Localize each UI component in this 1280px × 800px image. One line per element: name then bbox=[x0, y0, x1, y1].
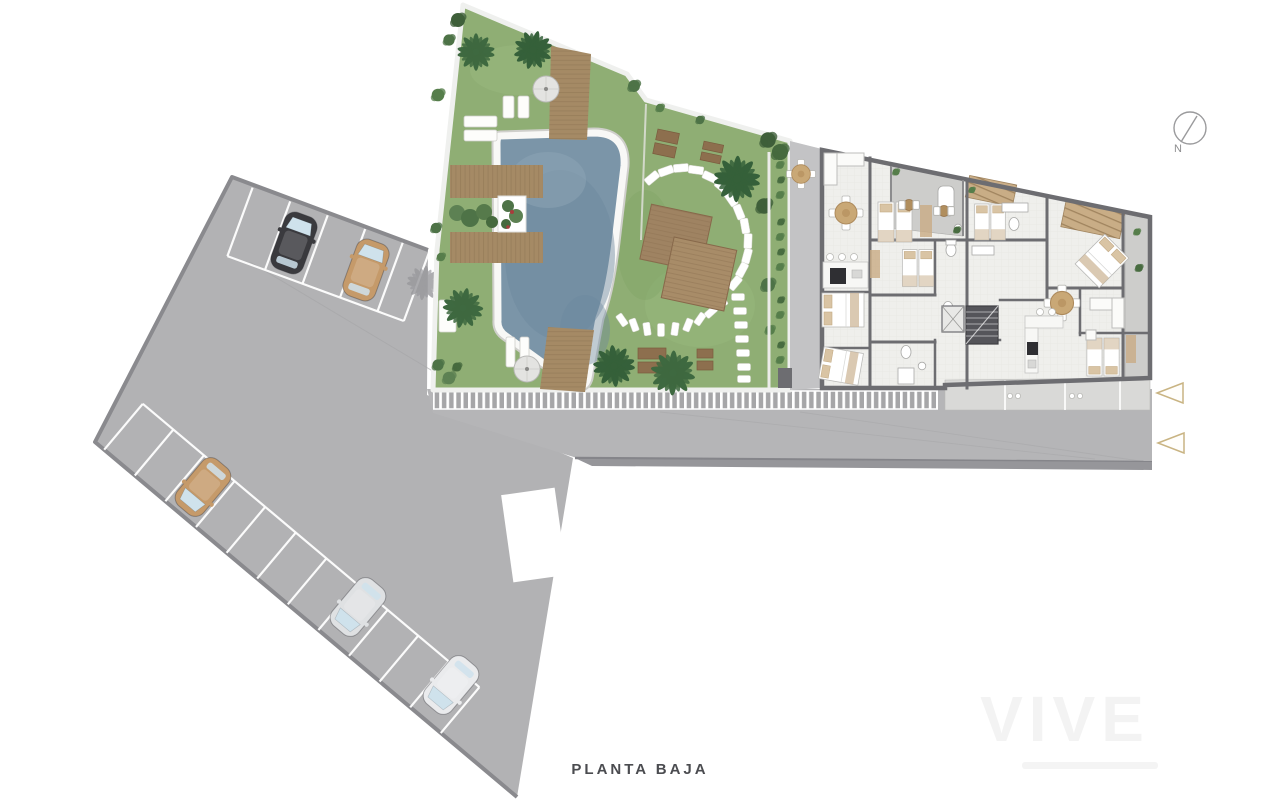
direction-markers bbox=[1157, 383, 1184, 453]
apartment-building bbox=[819, 150, 1150, 410]
pergola-deck-lower bbox=[661, 237, 736, 311]
pool-garden bbox=[430, 5, 790, 404]
plan-title: PLANTA BAJA bbox=[0, 761, 1280, 778]
parasol-bottom bbox=[514, 356, 540, 382]
planter-box bbox=[498, 196, 526, 232]
site-plan-drawing: N bbox=[0, 0, 1280, 800]
site-plan-page: N VIVE PLANTA BAJA bbox=[0, 0, 1280, 800]
compass-needle bbox=[1181, 116, 1197, 142]
deck-left-lower bbox=[450, 232, 543, 263]
compass-label: N bbox=[1174, 143, 1182, 155]
deck-bottom bbox=[540, 327, 594, 392]
direction-triangle-icon bbox=[1157, 383, 1183, 403]
north-compass: N bbox=[1174, 112, 1206, 155]
deck-left-upper bbox=[450, 165, 543, 198]
pedestrian-walkway bbox=[433, 391, 938, 409]
entry-gate-pillar bbox=[778, 368, 792, 388]
parasol-top bbox=[533, 76, 559, 102]
direction-triangle-icon bbox=[1158, 433, 1184, 453]
watermark-brand: VIVE bbox=[905, 682, 1225, 756]
